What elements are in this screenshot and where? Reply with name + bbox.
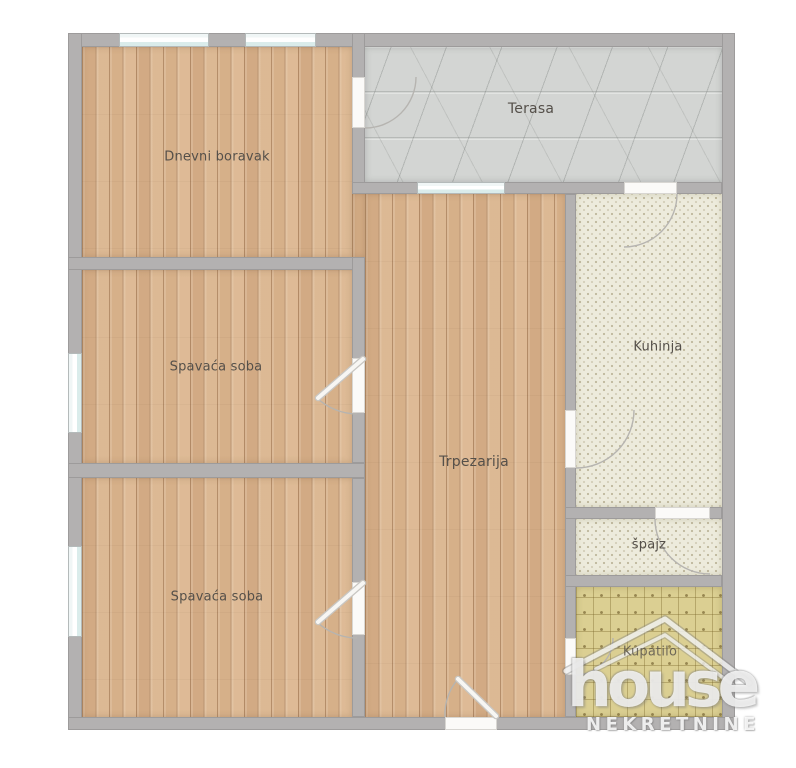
room-label-trpezarija: Trpezarija — [439, 454, 509, 470]
door-livingroom-terrace — [352, 77, 365, 128]
door-entrance — [445, 717, 497, 730]
door-kitchen-pantry — [655, 507, 710, 519]
wall-bedroom-divider — [68, 463, 365, 478]
wall-outer-right — [722, 33, 735, 730]
window-bedroom-1 — [68, 353, 82, 433]
room-label-terasa: Terasa — [508, 101, 554, 117]
passage-dnevni-trpezarija — [352, 194, 365, 257]
door-terrace-kitchen — [624, 182, 677, 194]
door-dining-kitchen — [565, 410, 576, 468]
door-bedroom-1 — [352, 358, 365, 413]
window-livingroom-2 — [245, 33, 316, 47]
floor-plan: Dnevni boravak Terasa Spavaća soba Trpez… — [0, 0, 796, 768]
watermark-subtitle: NEKRETNINE — [586, 714, 760, 735]
wall-livingroom-bottom — [68, 257, 365, 270]
room-label-spajz: špajz — [632, 538, 666, 553]
watermark-brand: house — [567, 648, 755, 721]
room-label-dnevni-boravak: Dnevni boravak — [164, 150, 269, 165]
window-terrace-dining — [417, 182, 505, 194]
door-bedroom-2 — [352, 582, 365, 635]
room-label-kuhinja: Kuhinja — [633, 340, 682, 355]
window-bedroom-2 — [68, 546, 82, 637]
room-label-spavaca-soba-1: Spavaća soba — [170, 360, 263, 375]
wall-pantry-bathroom — [565, 575, 722, 587]
window-livingroom-1 — [119, 33, 209, 47]
room-label-spavaca-soba-2: Spavaća soba — [171, 590, 264, 605]
